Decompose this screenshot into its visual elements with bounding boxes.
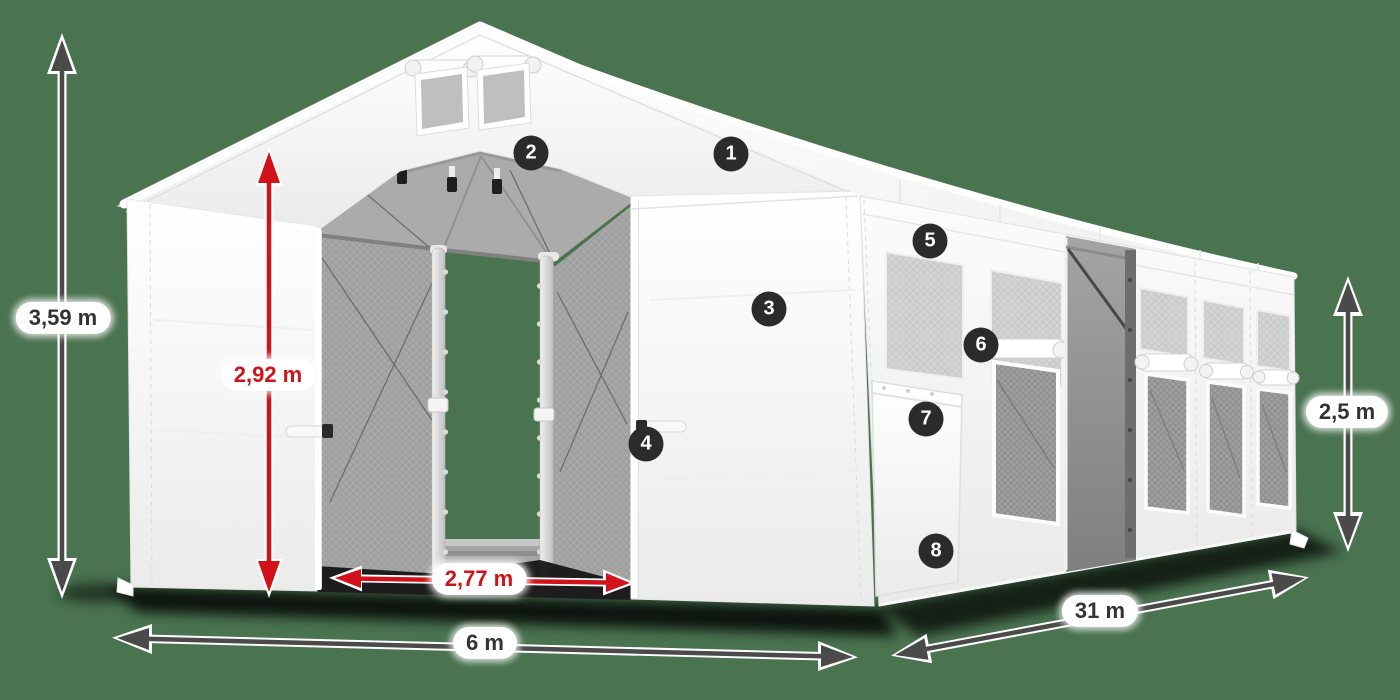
interior-mesh-right bbox=[553, 206, 631, 597]
hotspot-3[interactable]: 3 bbox=[752, 292, 787, 327]
interior-mesh-left bbox=[317, 237, 443, 591]
tent-interior bbox=[317, 151, 631, 602]
hotspot-4[interactable]: 4 bbox=[629, 427, 664, 462]
side-window bbox=[1200, 363, 1254, 516]
front-left-panel bbox=[117, 199, 333, 596]
dim-label-side-height: 2,5 m bbox=[1306, 396, 1388, 428]
hotspot-2[interactable]: 2 bbox=[514, 136, 549, 171]
side-vent-mesh bbox=[1203, 300, 1244, 365]
dim-label-total-height: 3,59 m bbox=[16, 302, 111, 334]
hotspot-8[interactable]: 8 bbox=[919, 534, 954, 569]
tent-dimensions-diagram: 3,59 m 2,92 m 2,77 m 6 m 31 m 2,5 m 1 2 … bbox=[0, 0, 1400, 700]
dim-label-width: 6 m bbox=[453, 627, 517, 659]
side-vent-mesh bbox=[886, 252, 963, 379]
hotspot-5[interactable]: 5 bbox=[913, 224, 948, 259]
side-vent-mesh bbox=[1140, 288, 1188, 357]
side-door-opening bbox=[1066, 236, 1136, 572]
hotspot-6[interactable]: 6 bbox=[964, 328, 999, 363]
dim-label-length: 31 m bbox=[1062, 595, 1138, 627]
dim-label-clearance-height: 2,92 m bbox=[221, 359, 316, 391]
strap-buckle bbox=[322, 424, 333, 438]
dim-label-entrance-width: 2,77 m bbox=[432, 563, 527, 595]
front-right-panel bbox=[631, 191, 874, 606]
pass-through-opening bbox=[445, 252, 540, 546]
hotspot-1[interactable]: 1 bbox=[714, 137, 749, 172]
tent-illustration bbox=[0, 0, 1400, 700]
hotspot-7[interactable]: 7 bbox=[909, 402, 944, 437]
tie-strap bbox=[286, 426, 326, 437]
side-vent-mesh bbox=[1257, 310, 1290, 371]
